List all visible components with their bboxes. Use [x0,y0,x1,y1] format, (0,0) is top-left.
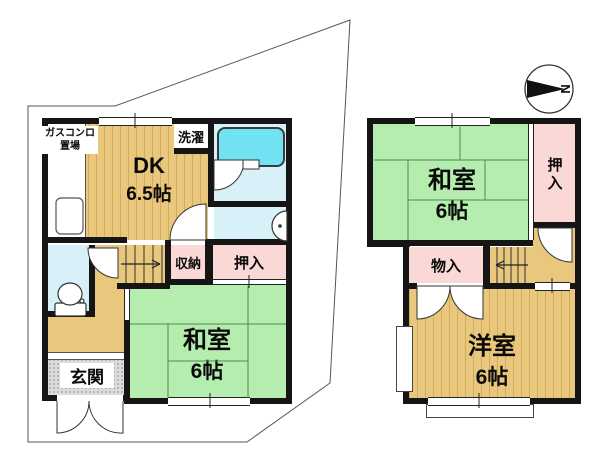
wall [205,239,292,245]
stair-landing-floor [533,228,575,283]
wall [403,398,428,404]
storage-1f-label: 収納 [168,253,208,272]
closet-2f-label: 押入 [544,146,564,204]
bay-window-bottom [426,404,534,418]
window-western-bottom [428,397,530,406]
tatami-2f-label: 和室 6帖 [395,160,509,225]
gas-stove-label-line2: 置場 [60,140,80,153]
wall [208,124,214,207]
stairs-2f-floor [490,247,533,283]
entrance-door-arcs [57,401,123,433]
window-tatami-1f-bottom [168,397,250,406]
wall [89,245,95,311]
stairs-1f-floor [117,245,170,283]
storage-2f-text: 物入 [431,255,461,276]
gas-stove-label: ガスコンロ 置場 [42,126,98,154]
compass-north-text: N [559,84,574,93]
entrance-label: 玄関 [60,363,114,388]
gas-stove-label-line1: ガスコンロ [45,127,95,140]
laundry-label-text: 洗濯 [178,127,204,146]
entrance-step [48,352,124,360]
western-room-label: 洋室 6帖 [435,326,549,391]
wall [575,118,581,404]
laundry-label: 洗濯 [175,126,207,147]
wall [483,241,490,289]
closet-1f-label: 押入 [214,252,284,273]
toilet-floor [48,245,89,311]
wall [208,201,292,207]
wall [42,118,48,401]
wall [42,237,127,243]
wall [42,311,95,317]
wall [124,320,130,404]
wall [528,222,581,228]
tatami-1f-text: 和室 [183,320,231,355]
wall [570,283,581,289]
wall [367,240,533,246]
window-tatami-2f-top [415,117,490,126]
dk-label-text: DK [133,153,165,179]
hallway-lower [48,317,124,352]
sliding-door-closet-1f [213,279,286,285]
washroom-floor [214,207,286,239]
wall [530,398,581,404]
entrance-text: 玄関 [70,363,104,388]
closet-2f-text: 押入 [544,157,565,193]
bathtub [217,127,285,167]
western-room-text: 洋室 [468,326,516,361]
wall [403,283,417,289]
bay-window-left [396,326,413,392]
sliding-door-closet-2f [528,124,534,240]
closet-1f-text: 押入 [234,252,264,273]
compass-north-label: N [558,81,574,97]
tatami-2f-text: 和室 [428,160,476,195]
railing-under-landing [535,282,570,291]
tatami-2f-size-text: 6帖 [436,195,469,225]
tatami-1f-label: 和室 6帖 [150,320,264,385]
wall [367,118,373,247]
window-dk-top [99,117,172,126]
wall [286,118,292,404]
wall [490,283,535,289]
sliding-door-tatami-1f [124,289,130,320]
western-room-size-text: 6帖 [476,361,509,391]
dk-size-text: 6.5帖 [126,179,171,206]
storage-1f-text: 収納 [175,253,201,272]
wall [123,395,130,401]
dk-label: DK 6.5帖 [99,153,199,206]
tatami-1f-size-text: 6帖 [191,355,224,385]
floorplan-canvas: ガスコンロ 置場 洗濯 DK 6.5帖 収納 押入 和室 6帖 玄関 和室 6帖… [0,0,600,466]
storage-2f-label: 物入 [411,255,481,276]
wall [42,395,57,401]
